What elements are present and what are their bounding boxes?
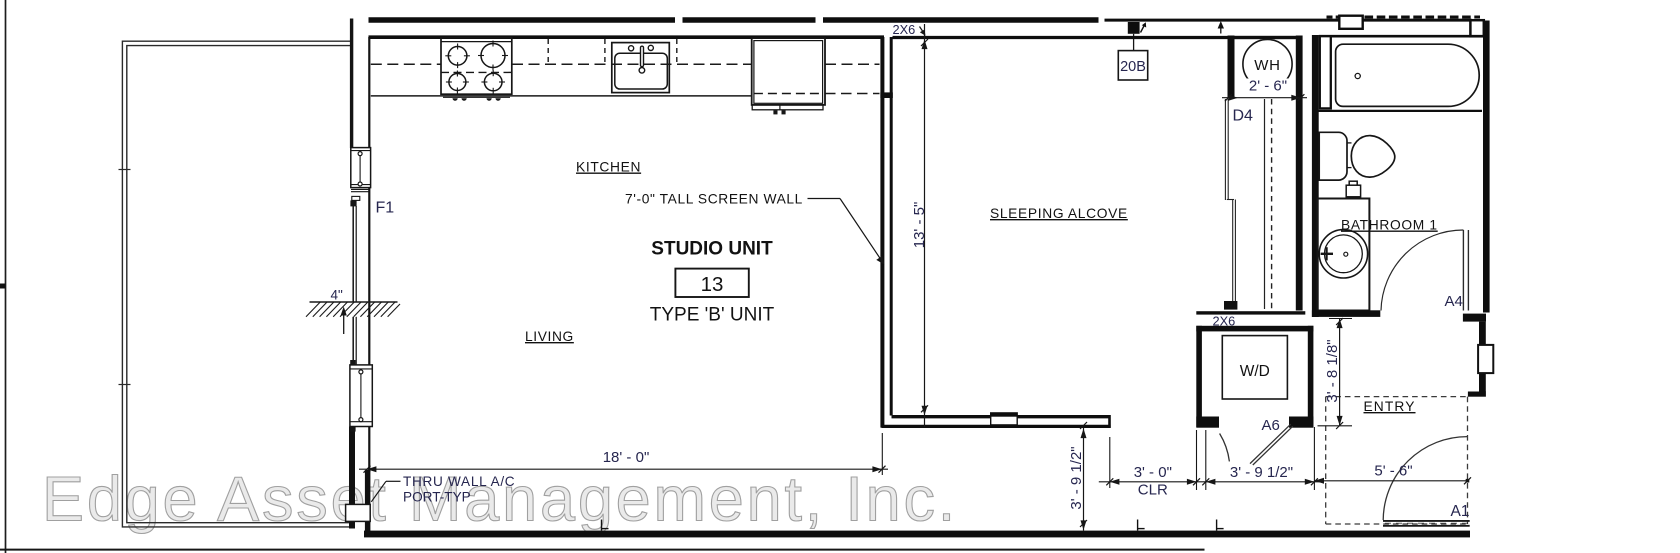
svg-text:20B: 20B bbox=[1120, 59, 1146, 75]
svg-text:WH: WH bbox=[1254, 57, 1281, 74]
svg-text:3' - 8 1/8": 3' - 8 1/8" bbox=[1324, 339, 1341, 402]
svg-text:3' - 0": 3' - 0" bbox=[1134, 464, 1172, 481]
svg-text:THRU WALL A/C: THRU WALL A/C bbox=[403, 474, 515, 489]
svg-text:BATHROOM 1: BATHROOM 1 bbox=[1341, 218, 1438, 233]
svg-text:F1: F1 bbox=[376, 200, 395, 217]
svg-text:2X6: 2X6 bbox=[1213, 314, 1236, 329]
svg-text:PORT-TYP: PORT-TYP bbox=[403, 490, 471, 505]
svg-text:TYPE 'B' UNIT: TYPE 'B' UNIT bbox=[650, 305, 775, 326]
svg-text:A1: A1 bbox=[1451, 503, 1470, 520]
svg-text:2X6: 2X6 bbox=[893, 22, 916, 37]
svg-text:2' - 6": 2' - 6" bbox=[1249, 78, 1287, 95]
svg-text:A6: A6 bbox=[1262, 417, 1280, 434]
svg-text:LIVING: LIVING bbox=[525, 329, 574, 344]
svg-text:3' - 9 1/2": 3' - 9 1/2" bbox=[1230, 464, 1293, 481]
svg-text:SLEEPING ALCOVE: SLEEPING ALCOVE bbox=[990, 206, 1128, 221]
svg-text:A4: A4 bbox=[1445, 293, 1463, 310]
svg-text:4": 4" bbox=[331, 288, 344, 303]
svg-text:W/D: W/D bbox=[1240, 363, 1270, 380]
svg-text:CLR: CLR bbox=[1138, 482, 1168, 499]
svg-text:13: 13 bbox=[701, 273, 724, 296]
svg-text:18' - 0": 18' - 0" bbox=[603, 449, 650, 466]
svg-text:STUDIO UNIT: STUDIO UNIT bbox=[651, 239, 773, 260]
svg-text:KITCHEN: KITCHEN bbox=[576, 160, 641, 175]
svg-text:13' - 5": 13' - 5" bbox=[911, 202, 928, 249]
svg-text:5' - 6": 5' - 6" bbox=[1374, 463, 1412, 480]
svg-text:7'-0" TALL SCREEN WALL: 7'-0" TALL SCREEN WALL bbox=[625, 192, 803, 207]
svg-text:D4: D4 bbox=[1233, 108, 1254, 125]
svg-text:3' - 9 1/2": 3' - 9 1/2" bbox=[1068, 446, 1085, 509]
svg-text:ENTRY: ENTRY bbox=[1364, 399, 1416, 414]
